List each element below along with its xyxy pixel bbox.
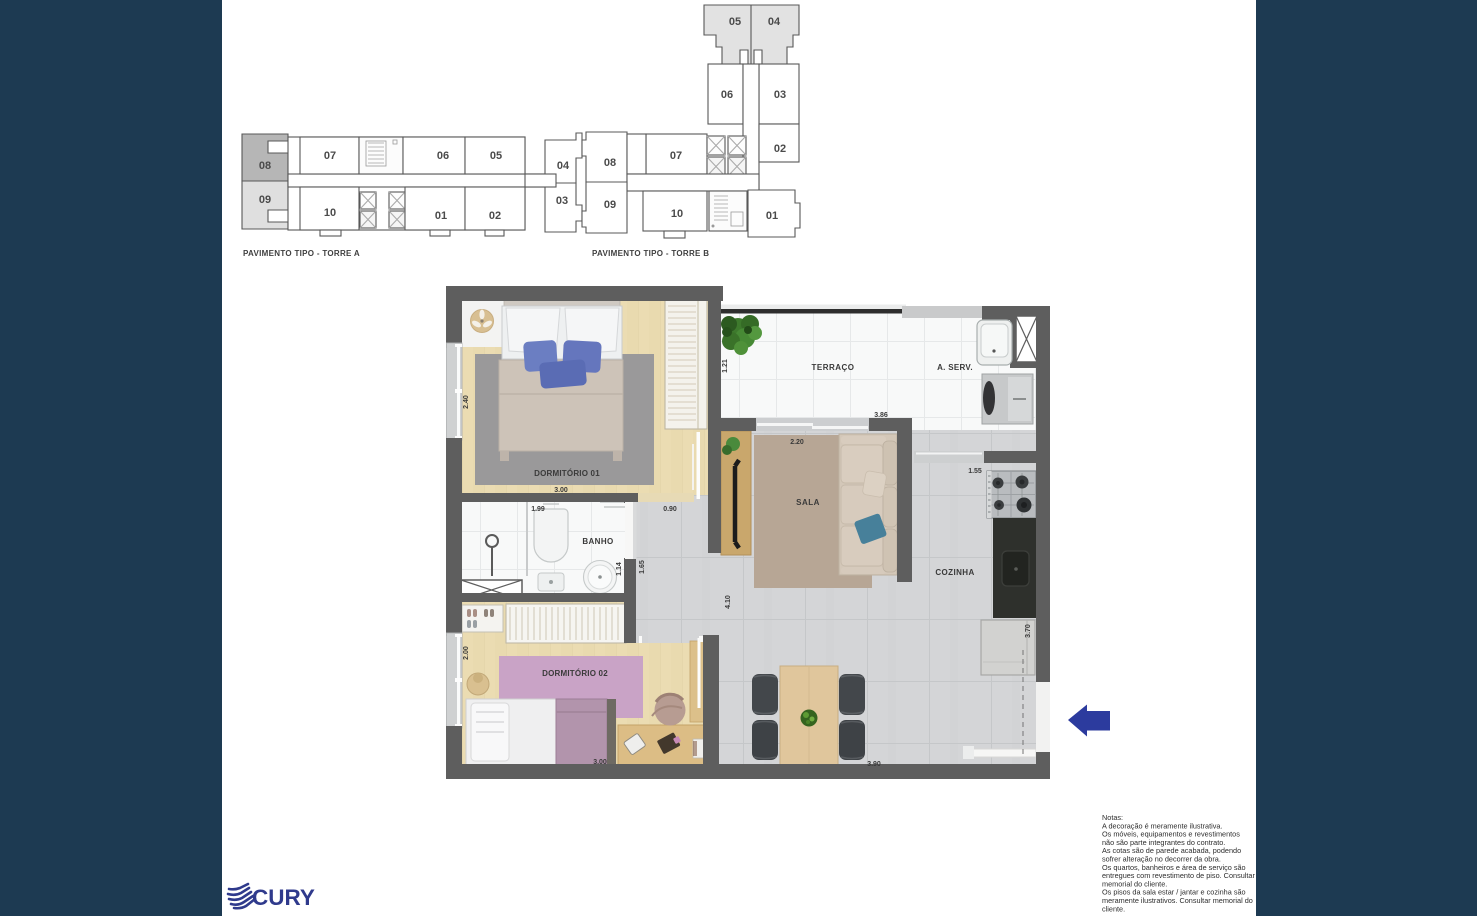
- svg-text:cliente.: cliente.: [1102, 904, 1125, 913]
- svg-text:4.10: 4.10: [725, 595, 732, 609]
- svg-text:02: 02: [489, 210, 501, 222]
- svg-text:2.40: 2.40: [463, 395, 470, 409]
- svg-text:1.65: 1.65: [639, 560, 646, 574]
- svg-text:2.00: 2.00: [463, 646, 470, 660]
- svg-text:DORMITÓRIO 02: DORMITÓRIO 02: [542, 669, 608, 678]
- svg-text:05: 05: [729, 16, 741, 28]
- svg-text:08: 08: [604, 157, 616, 169]
- svg-text:1.14: 1.14: [616, 562, 623, 576]
- svg-text:07: 07: [670, 150, 682, 162]
- svg-text:3.00: 3.00: [554, 487, 568, 494]
- svg-text:10: 10: [671, 208, 683, 220]
- svg-text:1.99: 1.99: [531, 506, 545, 513]
- svg-text:1.21: 1.21: [722, 359, 729, 373]
- svg-text:DORMITÓRIO 01: DORMITÓRIO 01: [534, 469, 600, 478]
- svg-text:0.90: 0.90: [663, 506, 677, 513]
- svg-text:3.86: 3.86: [874, 412, 888, 419]
- svg-text:PAVIMENTO TIPO - TORRE B: PAVIMENTO TIPO - TORRE B: [592, 249, 709, 258]
- svg-text:3.90: 3.90: [867, 761, 881, 768]
- svg-text:06: 06: [721, 89, 733, 101]
- svg-text:10: 10: [324, 207, 336, 219]
- svg-text:01: 01: [435, 210, 447, 222]
- svg-text:03: 03: [556, 195, 568, 207]
- svg-text:BANHO: BANHO: [582, 537, 613, 546]
- svg-text:1.55: 1.55: [968, 468, 982, 475]
- svg-text:3.70: 3.70: [1025, 624, 1032, 638]
- svg-text:COZINHA: COZINHA: [935, 568, 974, 577]
- svg-text:TERRAÇO: TERRAÇO: [811, 363, 854, 372]
- svg-text:SALA: SALA: [796, 498, 820, 507]
- svg-text:08: 08: [259, 160, 271, 172]
- svg-text:09: 09: [604, 199, 616, 211]
- svg-text:CURY: CURY: [252, 885, 315, 910]
- svg-text:3.00: 3.00: [593, 759, 607, 766]
- svg-text:05: 05: [490, 150, 502, 162]
- svg-text:09: 09: [259, 194, 271, 206]
- svg-text:03: 03: [774, 89, 786, 101]
- svg-text:02: 02: [774, 143, 786, 155]
- svg-text:06: 06: [437, 150, 449, 162]
- svg-text:A. SERV.: A. SERV.: [937, 363, 973, 372]
- svg-text:04: 04: [557, 160, 570, 172]
- svg-text:04: 04: [768, 16, 781, 28]
- svg-text:PAVIMENTO TIPO - TORRE A: PAVIMENTO TIPO - TORRE A: [243, 249, 360, 258]
- svg-text:2.20: 2.20: [790, 439, 804, 446]
- svg-text:07: 07: [324, 150, 336, 162]
- svg-text:01: 01: [766, 210, 778, 222]
